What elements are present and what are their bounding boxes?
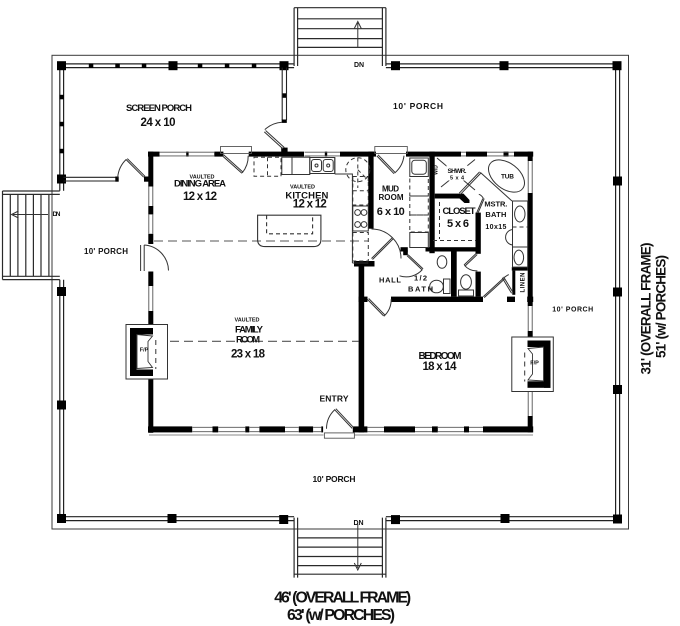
svg-text:LINEN: LINEN [521,273,527,293]
svg-text:24 x 10: 24 x 10 [141,117,176,129]
svg-text:5 x 4: 5 x 4 [450,176,465,182]
svg-text:6 x 10: 6 x 10 [377,206,405,218]
svg-text:5 x 6: 5 x 6 [447,218,469,230]
svg-text:10' PORCH: 10' PORCH [84,247,128,256]
svg-text:ROOM: ROOM [236,335,260,346]
svg-text:SHWR.: SHWR. [448,168,467,175]
svg-text:BATH: BATH [485,210,506,219]
svg-text:10x15: 10x15 [485,224,506,231]
svg-text:CLOSET: CLOSET [443,206,476,217]
svg-text:12 x 12: 12 x 12 [183,191,217,203]
svg-text:10' PORCH: 10' PORCH [552,307,593,314]
svg-text:VAULTED: VAULTED [235,318,260,324]
svg-text:46' (OVERALL FRAME): 46' (OVERALL FRAME) [274,590,411,607]
svg-text:F/P: F/P [530,361,539,367]
svg-text:DN: DN [354,62,364,69]
svg-text:DN: DN [354,520,364,527]
svg-text:SCREEN PORCH: SCREEN PORCH [126,103,192,114]
svg-text:W/D: W/D [434,165,440,175]
svg-text:F/P: F/P [140,348,149,354]
svg-text:DN: DN [53,211,61,218]
svg-text:12 x 12: 12 x 12 [293,199,327,211]
svg-text:23 x 18: 23 x 18 [231,349,266,361]
svg-text:DINING AREA: DINING AREA [174,179,226,190]
svg-text:10' PORCH: 10' PORCH [393,101,443,111]
svg-text:31' (OVERALL FRAME): 31' (OVERALL FRAME) [639,243,654,375]
svg-text:ENTRY: ENTRY [320,394,349,404]
svg-text:TUB: TUB [501,174,514,181]
svg-text:10' PORCH: 10' PORCH [313,474,356,484]
svg-text:BATH: BATH [408,285,433,294]
svg-text:63' (w/ PORCHES): 63' (w/ PORCHES) [287,607,395,624]
svg-text:HALL: HALL [379,276,401,285]
svg-text:MSTR.: MSTR. [484,199,507,208]
svg-text:ROOM: ROOM [379,193,404,202]
svg-text:18 x 14: 18 x 14 [423,361,458,373]
svg-text:1/2: 1/2 [414,274,427,283]
svg-text:51' (w/ PORCHES): 51' (w/ PORCHES) [654,255,669,358]
